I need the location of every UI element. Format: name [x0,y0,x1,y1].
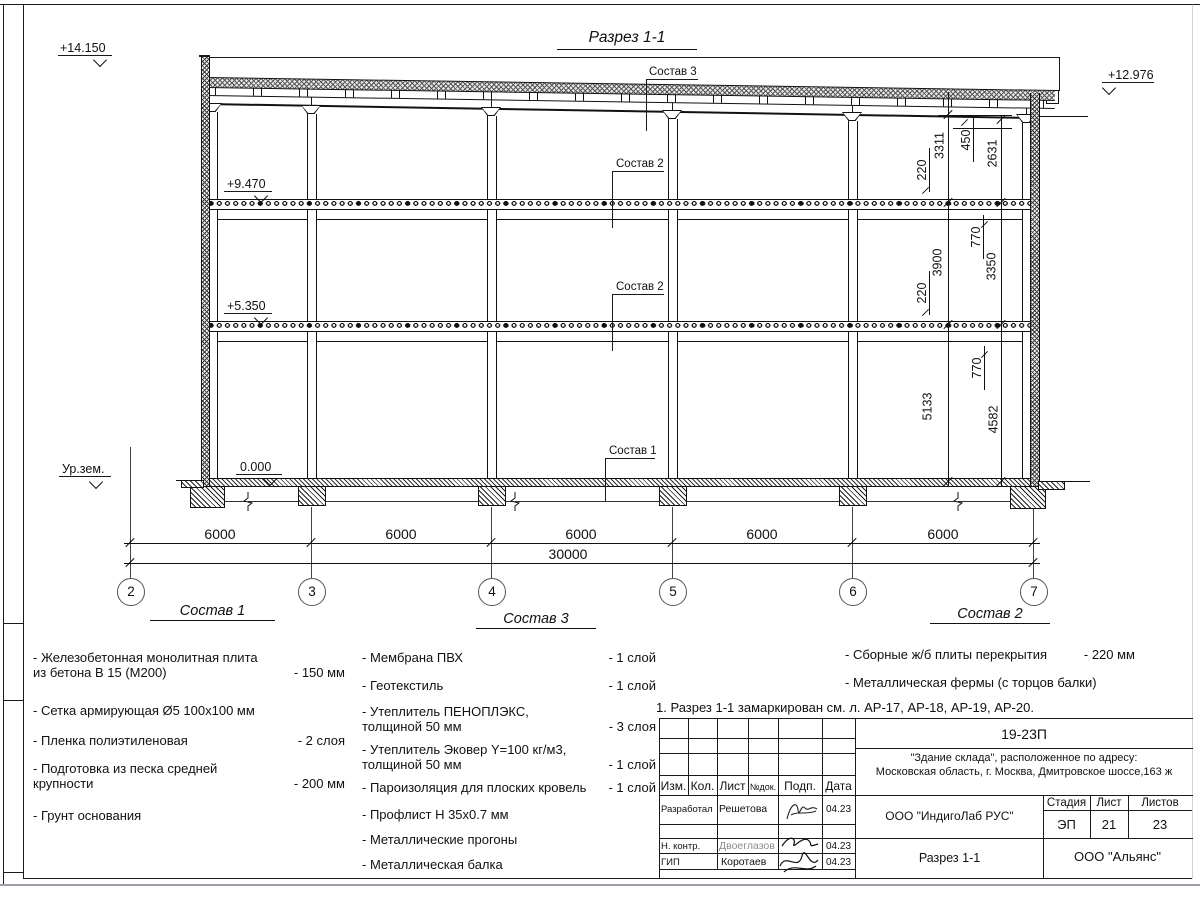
floor-slab-level2 [207,199,1030,210]
footing [190,486,225,508]
left-wall [201,57,210,486]
stamp-stage-label: Стадия [1043,797,1090,809]
elevation-ground-level: Ур.зем. [62,462,104,476]
elevation-arrow-icon [89,475,103,489]
stamp-date: 04.23 [822,857,855,868]
dim-220-upper: 220 [916,148,930,192]
stamp-sheet-title: Разрез 1-1 [856,851,1043,865]
axis-bubble-6: 6 [839,578,867,606]
legend-item-text: - Грунт основания [33,809,141,824]
callout-roof: Состав 3 [649,66,697,78]
legend-item-text: - Металлические прогоны [362,833,517,848]
bay-dim: 6000 [913,526,973,542]
stamp-builder-org: ООО "Альянс" [1043,849,1192,864]
stamp-name: Двоеглазов [719,840,779,852]
total-dim: 30000 [538,546,598,562]
legend-item-text: - Сетка армирующая Ø5 100х100 мм [33,704,255,719]
stamp-col-ndok: №док. [748,782,778,792]
axis-bubble-5: 5 [659,578,687,606]
bay-dim: 6000 [371,526,431,542]
axis-bubble-3: 3 [298,578,326,606]
floor-slab-level1 [207,321,1030,332]
stamp-doc-code: 19-23П [856,726,1192,742]
legend-item-value: - 1 слой [608,781,656,796]
break-mark [509,492,521,511]
column [209,112,218,478]
column-capital [662,110,682,119]
legend-item-value: - 2 слоя [298,734,345,749]
stamp-date: 04.23 [822,804,855,815]
legend-item-value: - 3 слоя [609,720,656,735]
footing [839,486,867,506]
drawing-note: 1. Разрез 1-1 замаркирован см. л. АР-17,… [656,700,1136,715]
column [307,114,317,478]
footing [659,486,687,506]
ground-floor-slab [207,478,1030,487]
stamp-sheets-label: Листов [1128,797,1192,809]
footing [478,486,506,506]
signature-icon [776,832,822,876]
section-view-title: Разрез 1-1 [557,29,697,50]
dim-4582: 4582 [988,398,1001,442]
legend-item-value: - 200 мм [294,777,345,792]
legend-item-text: - Профлист Н 35х0.7 мм [362,808,509,823]
break-mark [952,492,964,511]
dim-770-lower: 770 [971,346,985,390]
drawing-sheet: Разрез 1-1 [0,0,1200,900]
elevation-zero: 0.000 [240,460,271,474]
legend-item-text: - Геотекстиль [362,679,443,694]
stamp-sheet-value: 21 [1090,817,1128,832]
legend-item-text: - Металлическая фермы (с торцов балки) [845,676,1097,691]
callout-floor: Состав 1 [609,445,657,457]
stamp-sheets-value: 23 [1128,817,1192,832]
bay-dim: 6000 [190,526,250,542]
column-capital [842,112,862,121]
stamp-col-podp: Подп. [778,779,822,793]
stamp-stage-value: ЭП [1043,817,1090,832]
legend-item-text: - Металлическая балка [362,858,503,873]
legend-item-text: - Железобетонная монолитная плита из бет… [33,651,258,680]
stamp-name: Коротаев [721,856,779,868]
callout-slab-upper: Состав 2 [616,158,664,170]
dim-450: 450 [960,118,974,162]
legend-item-value: - 150 мм [294,666,345,681]
legend-item-text: - Подготовка из песка средней крупности [33,762,217,791]
bay-dim: 6000 [732,526,792,542]
stamp-name: Решетова [719,803,777,815]
dim-770-upper: 770 [970,215,984,259]
legend-title: Состав 2 [930,606,1050,624]
signature-icon [783,799,821,823]
column-capital [481,107,501,116]
stamp-sheet-label: Лист [1090,797,1128,809]
stamp-object-line1: "Здание склада", расположенное по адресу… [856,752,1192,764]
axis-bubble-7: 7 [1020,578,1048,606]
legend-item-text: - Утеплитель ПЕНОПЛЭКС, толщиной 50 мм [362,705,529,734]
column-capital [301,105,321,114]
legend-item-value: - 220 мм [1084,648,1135,663]
legend-item-value: - 1 слой [608,651,656,666]
column [487,116,497,478]
dim-3900: 3900 [932,241,945,285]
axis-bubble-4: 4 [478,578,506,606]
callout-slab-lower: Состав 2 [616,281,664,293]
dim-2631: 2631 [987,132,1000,176]
elevation-arrow-icon [1102,81,1116,95]
legend-title: Состав 1 [150,603,275,621]
right-wall [1030,93,1040,486]
stamp-col-kol: Кол. [688,779,717,793]
dim-3350: 3350 [986,245,999,289]
legend-item-text: - Утеплитель Эковер Y=100 кг/м3, толщино… [362,743,566,772]
stamp-role: Разработал [661,804,717,815]
legend-item-text: - Пленка полиэтиленовая [33,734,188,749]
legend-item-text: - Сборные ж/б плиты перекрытия [845,648,1047,663]
legend-item-text: - Пароизоляция для плоских кровель [362,781,586,796]
legend-item-value: - 1 слой [608,758,656,773]
stamp-col-data: Дата [822,779,855,793]
stamp-designer-org: ООО "ИндигоЛаб РУС" [856,809,1043,823]
stamp-col-list: Лист [717,779,748,793]
stamp-role: ГИП [661,857,717,868]
legend-title: Состав 3 [476,611,596,629]
break-mark [242,492,254,511]
bay-dim: 6000 [551,526,611,542]
dim-220-lower: 220 [916,271,930,315]
dim-5133: 5133 [922,385,935,429]
legend-item-text: - Мембрана ПВХ [362,651,463,666]
stamp-role: Н. контр. [661,841,717,852]
stamp-date: 04.23 [822,841,855,852]
footing [298,486,326,506]
column [848,121,858,478]
axis-bubble-2: 2 [117,578,145,606]
elevation-roof-right: +12.976 [1108,68,1154,82]
stamp-col-izm: Изм. [659,779,688,793]
legend-item-value: - 1 слой [608,679,656,694]
column [668,119,678,478]
dim-3311: 3311 [934,124,947,168]
stamp-object-line2: Московская область, г. Москва, Дмитровск… [856,766,1192,778]
